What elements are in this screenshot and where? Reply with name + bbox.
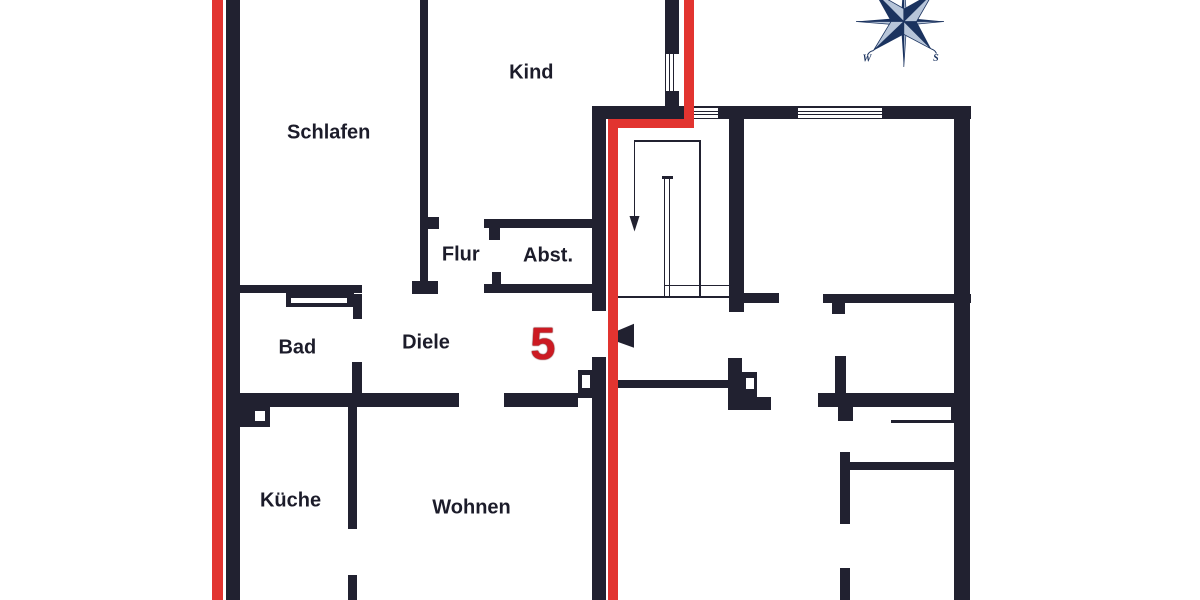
svg-text:S: S: [933, 53, 939, 64]
svg-text:W: W: [862, 54, 872, 65]
